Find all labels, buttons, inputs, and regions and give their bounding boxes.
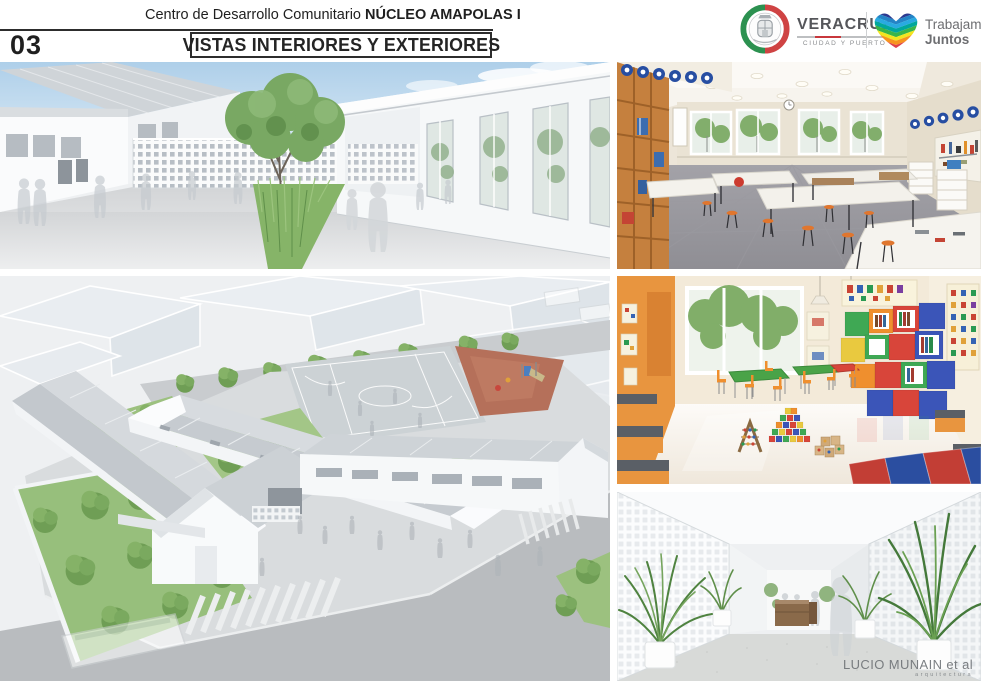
watermark-name: LUCIO MUNAIN et al bbox=[843, 657, 973, 672]
watermark-subtitle: arquitectura bbox=[843, 672, 973, 678]
veracruz-seal-icon bbox=[740, 4, 790, 59]
veracruz-logo: VERACRUZ CIUDAD Y PUERTO bbox=[740, 4, 892, 59]
trabajamos-juntos-shield-icon bbox=[873, 7, 919, 59]
header-rule bbox=[0, 29, 493, 31]
project-title-emphasis: NÚCLEO AMAPOLAS I bbox=[365, 7, 521, 23]
logo-divider bbox=[866, 12, 867, 48]
corridor-illustration bbox=[617, 492, 981, 681]
tj-word2: Juntos bbox=[925, 33, 981, 48]
tj-word1: Trabajamos bbox=[925, 18, 981, 33]
render-aerial-site bbox=[0, 276, 610, 681]
workshop-illustration bbox=[617, 62, 981, 269]
sheet-title-box: VISTAS INTERIORES Y EXTERIORES bbox=[190, 32, 492, 58]
presentation-sheet: Centro de Desarrollo Comunitario NÚCLEO … bbox=[0, 0, 981, 681]
courtyard-illustration bbox=[0, 62, 610, 269]
trabajamos-juntos-logo: Trabajamos Juntos bbox=[873, 7, 981, 59]
project-title-prefix: Centro de Desarrollo Comunitario bbox=[145, 7, 365, 23]
playroom-illustration bbox=[617, 276, 981, 484]
sheet-number: 03 bbox=[10, 30, 42, 61]
architect-watermark: LUCIO MUNAIN et al arquitectura bbox=[843, 657, 973, 678]
render-children-playroom bbox=[617, 276, 981, 484]
render-lattice-corridor: LUCIO MUNAIN et al arquitectura bbox=[617, 492, 981, 681]
sheet-title: VISTAS INTERIORES Y EXTERIORES bbox=[182, 34, 500, 56]
project-title: Centro de Desarrollo Comunitario NÚCLEO … bbox=[145, 7, 491, 23]
render-workshop-classroom bbox=[617, 62, 981, 269]
aerial-illustration bbox=[0, 276, 610, 681]
render-exterior-courtyard bbox=[0, 62, 610, 269]
trabajamos-juntos-text: Trabajamos Juntos bbox=[925, 18, 981, 48]
